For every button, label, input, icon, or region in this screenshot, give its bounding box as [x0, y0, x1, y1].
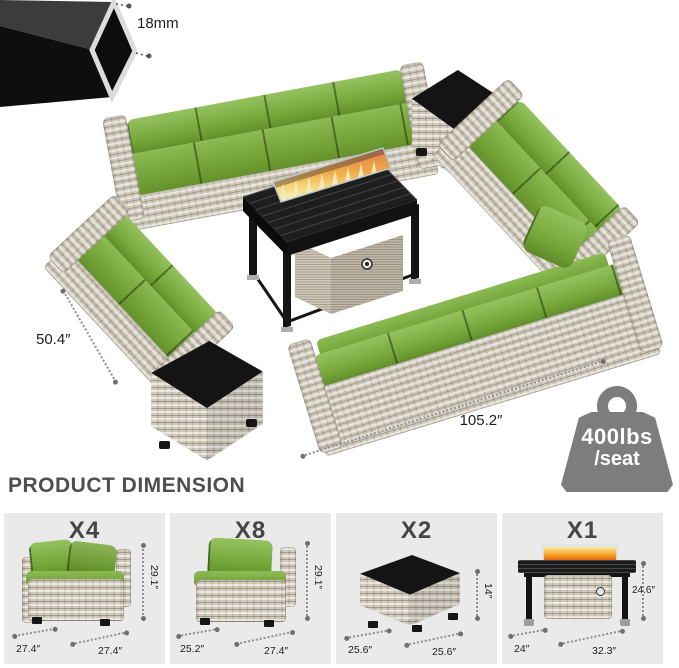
left-dimension-line [346, 629, 390, 639]
left-dimension-label: 27.4″ [16, 643, 40, 655]
depth-dimension-label: 50.4″ [36, 331, 71, 348]
height-dimension-label: 24.6″ [632, 585, 655, 596]
left-dimension-label: 25.6″ [348, 644, 372, 656]
sofa-base [28, 579, 124, 621]
right-dimension-label: 27.4″ [264, 645, 288, 657]
product-card-armless-sofa: X8 29.1″ 25.2″ 27.4″ [170, 513, 331, 664]
left-dimension-label: 25.2″ [180, 643, 204, 655]
tube-size-label: 18mm [137, 15, 179, 32]
weight-capacity-value: 400lbs [561, 424, 673, 450]
right-dimension-line [406, 632, 461, 646]
ottoman-foot [368, 621, 378, 628]
table-leg [622, 573, 628, 619]
product-card-corner-sofa: X4 29.1″ 27.4″ 27.4″ [4, 513, 165, 664]
side-table-ottoman-bottom [149, 341, 265, 463]
quantity-label: X4 [4, 517, 165, 545]
fire-pit-base [544, 575, 612, 619]
right-dimension-label: 25.6″ [432, 646, 456, 658]
ottoman-drawing [358, 555, 462, 627]
quantity-label: X2 [336, 517, 497, 545]
left-dimension-label: 24″ [514, 643, 529, 655]
weight-capacity-unit: /seat [561, 448, 673, 471]
width-dimension-label: 105.2″ [446, 412, 516, 429]
section-heading: PRODUCT DIMENSION [8, 474, 245, 498]
right-dimension-label: 32.3″ [592, 645, 616, 657]
sofa-base [196, 580, 286, 622]
quantity-label: X1 [502, 517, 663, 545]
height-dimension-label: 29.1″ [148, 565, 160, 589]
left-dimension-line [14, 628, 56, 637]
product-card-fire-pit-table: X1 24.6″ 24″ 32.3″ [502, 513, 663, 664]
left-dimension-line [510, 629, 546, 637]
weight-capacity-badge: 400lbs /seat [561, 386, 673, 492]
sofa-foot [32, 617, 42, 624]
height-dimension-line [306, 543, 308, 619]
height-dimension-label: 14″ [482, 583, 494, 598]
right-dimension-label: 27.4″ [98, 645, 122, 657]
gas-control-knob [596, 587, 605, 596]
fire-pit-base [295, 241, 331, 314]
ottoman-foot [412, 625, 422, 632]
right-dimension-line [560, 630, 623, 645]
table-foot [524, 619, 534, 626]
right-dimension-line [236, 631, 293, 645]
ottoman-foot [448, 613, 458, 620]
sofa-foot [100, 619, 110, 626]
height-dimension-label: 29.1″ [312, 565, 324, 589]
product-card-ottoman-table: X2 14″ 25.6″ 25.6″ [336, 513, 497, 664]
fire-pit-tabletop [518, 560, 636, 573]
left-dimension-line [178, 628, 218, 637]
table-leg [526, 573, 532, 619]
height-dimension-line [142, 545, 144, 619]
fire-pit-table [233, 146, 433, 336]
sofa-foot [200, 618, 210, 625]
table-foot [620, 619, 630, 626]
sofa-foot [264, 620, 274, 627]
product-infographic: 18mm [0, 0, 679, 668]
ottoman-foot [246, 419, 257, 427]
ottoman-foot [159, 441, 170, 449]
height-dimension-line [476, 571, 478, 619]
right-dimension-line [72, 631, 127, 645]
